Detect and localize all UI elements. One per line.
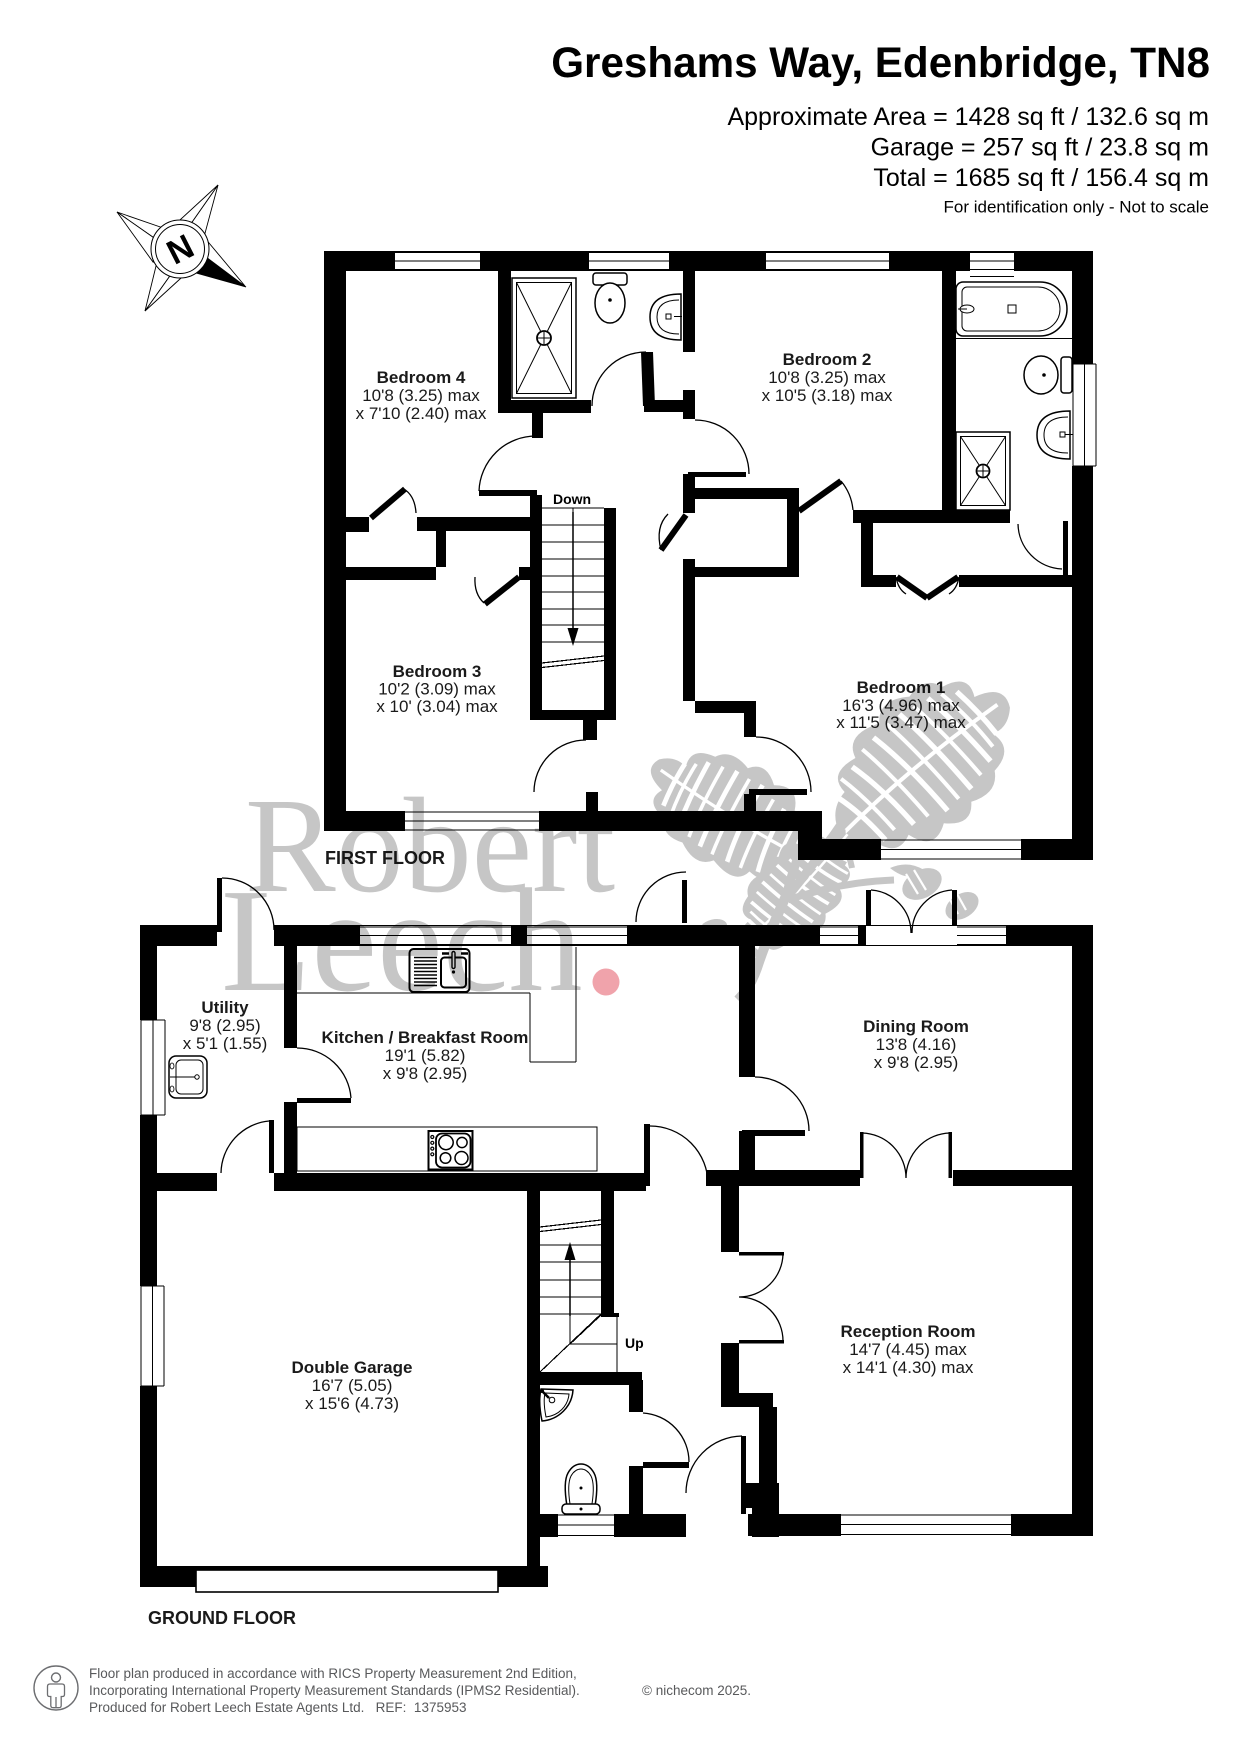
svg-text:Leech: Leech bbox=[221, 859, 582, 1023]
svg-text:x 10' (3.04) max: x 10' (3.04) max bbox=[376, 697, 498, 716]
svg-text:10'8 (3.25) max: 10'8 (3.25) max bbox=[768, 368, 886, 387]
svg-text:x 10'5 (3.18) max: x 10'5 (3.18) max bbox=[762, 386, 893, 405]
svg-text:Total = 1685 sq ft / 156.4 sq: Total = 1685 sq ft / 156.4 sq m bbox=[873, 164, 1209, 192]
svg-text:x 9'8 (2.95): x 9'8 (2.95) bbox=[874, 1053, 959, 1072]
svg-text:Incorporating International Pr: Incorporating International Property Mea… bbox=[89, 1683, 580, 1698]
svg-text:Produced for Robert Leech Esta: Produced for Robert Leech Estate Agents … bbox=[89, 1700, 467, 1715]
svg-text:x 9'8 (2.95): x 9'8 (2.95) bbox=[383, 1064, 468, 1083]
svg-text:13'8 (4.16): 13'8 (4.16) bbox=[876, 1035, 957, 1054]
svg-text:Bedroom 2: Bedroom 2 bbox=[783, 350, 872, 369]
svg-text:19'1 (5.82): 19'1 (5.82) bbox=[385, 1046, 466, 1065]
svg-text:10'8 (3.25) max: 10'8 (3.25) max bbox=[362, 386, 480, 405]
svg-text:14'7 (4.45) max: 14'7 (4.45) max bbox=[849, 1340, 967, 1359]
svg-text:10'2 (3.09) max: 10'2 (3.09) max bbox=[378, 680, 496, 699]
svg-text:x 14'1 (4.30) max: x 14'1 (4.30) max bbox=[843, 1358, 974, 1377]
svg-text:Dining Room: Dining Room bbox=[863, 1017, 969, 1036]
svg-text:Bedroom 4: Bedroom 4 bbox=[377, 368, 466, 387]
svg-text:Reception Room: Reception Room bbox=[840, 1322, 975, 1341]
svg-text:Bedroom 3: Bedroom 3 bbox=[393, 662, 482, 681]
svg-text:Approximate Area = 1428 sq ft: Approximate Area = 1428 sq ft / 132.6 sq… bbox=[727, 103, 1209, 131]
svg-text:Greshams Way, Edenbridge, TN8: Greshams Way, Edenbridge, TN8 bbox=[551, 39, 1210, 86]
svg-text:Floor plan produced in accorda: Floor plan produced in accordance with R… bbox=[89, 1666, 577, 1681]
svg-text:© nichecom 2025.: © nichecom 2025. bbox=[642, 1683, 751, 1698]
svg-text:x 15'6 (4.73): x 15'6 (4.73) bbox=[305, 1394, 399, 1413]
svg-text:Double Garage: Double Garage bbox=[292, 1358, 413, 1377]
svg-text:16'7 (5.05): 16'7 (5.05) bbox=[312, 1376, 393, 1395]
svg-text:x 5'1 (1.55): x 5'1 (1.55) bbox=[183, 1034, 268, 1053]
svg-text:For identification only - Not: For identification only - Not to scale bbox=[943, 198, 1209, 217]
svg-text:x 7'10 (2.40) max: x 7'10 (2.40) max bbox=[356, 404, 487, 423]
svg-text:Kitchen / Breakfast Room: Kitchen / Breakfast Room bbox=[322, 1028, 529, 1047]
svg-text:Up: Up bbox=[625, 1335, 644, 1351]
svg-text:GROUND FLOOR: GROUND FLOOR bbox=[148, 1608, 296, 1628]
svg-text:Garage = 257 sq ft / 23.8 sq m: Garage = 257 sq ft / 23.8 sq m bbox=[871, 134, 1209, 162]
svg-text:Down: Down bbox=[553, 491, 591, 507]
